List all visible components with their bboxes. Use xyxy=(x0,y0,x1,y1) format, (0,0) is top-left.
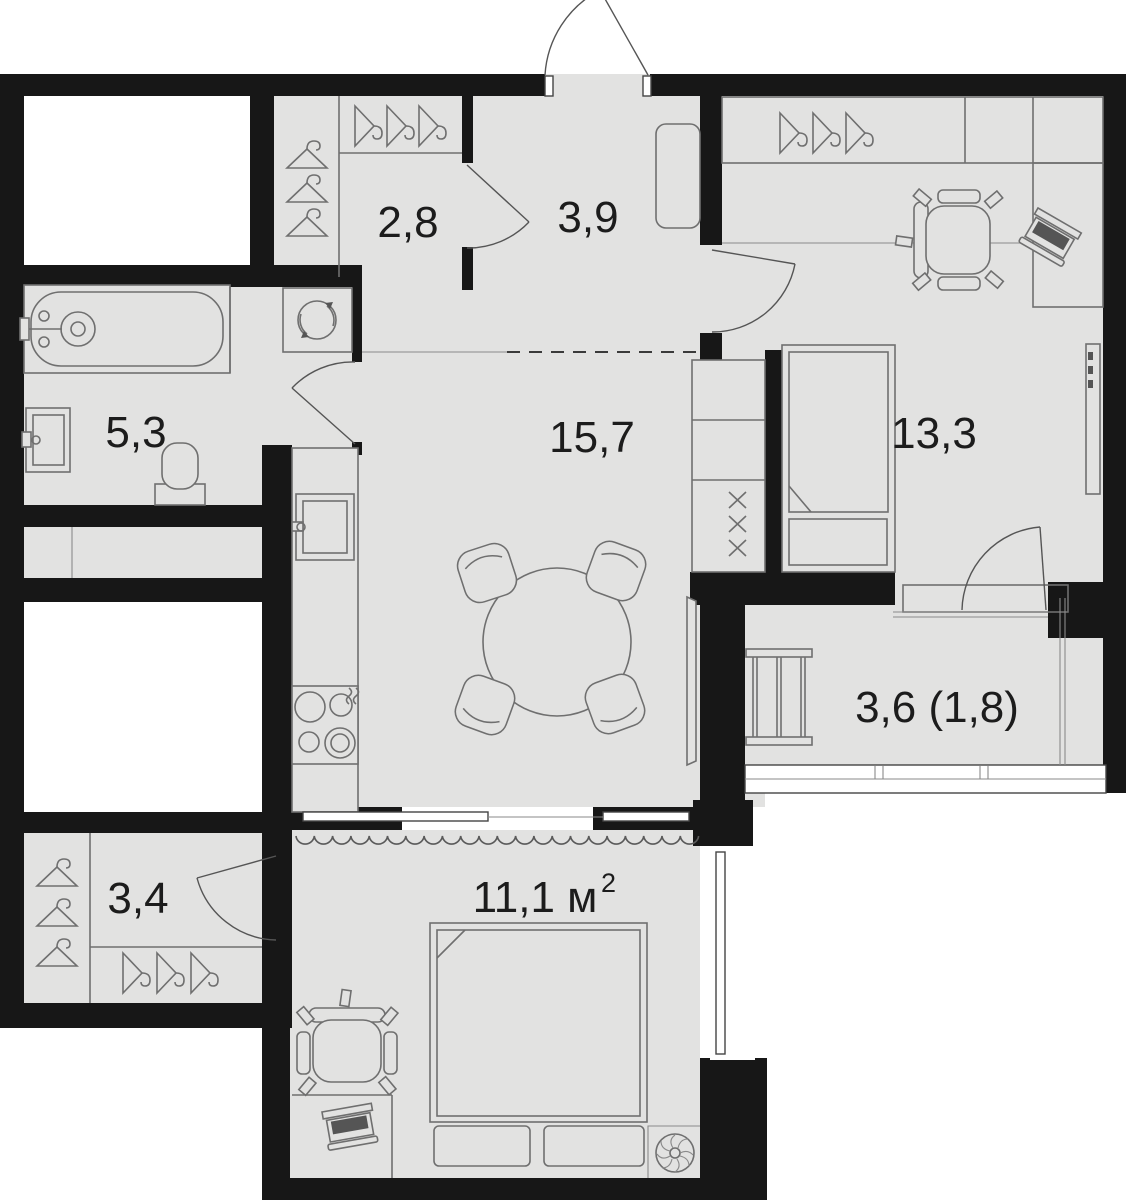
floor-plan: 2,8 3,9 5,3 15,7 13,3 3,6 (1,8) 3,4 11,1… xyxy=(0,0,1126,1200)
washing-machine xyxy=(283,288,352,352)
hob xyxy=(292,686,359,764)
neighbor-void-top xyxy=(24,96,250,265)
room-label-kitchen: 15,7 xyxy=(549,413,635,462)
room-label-bedroom-second: 11,1 м xyxy=(473,873,598,922)
room-label-loggia: 3,6 (1,8) xyxy=(855,683,1019,732)
room-label-hallway: 3,9 xyxy=(557,193,618,242)
window xyxy=(710,846,755,1060)
room-label-wardrobe: 3,4 xyxy=(107,874,168,923)
laptop xyxy=(322,1103,378,1150)
hall-cabinet xyxy=(656,124,700,228)
room-label-bathroom: 5,3 xyxy=(105,408,166,457)
neighbor-void-middle xyxy=(24,602,262,812)
bathtub xyxy=(20,285,230,373)
bathroom-sink xyxy=(22,408,70,472)
kitchen-sink xyxy=(292,494,354,560)
room-label-dressing: 2,8 xyxy=(377,198,438,247)
tall-cabinet-column xyxy=(692,360,765,572)
tv xyxy=(687,597,696,765)
room-label-bedroom-second-sup: 2 xyxy=(601,868,616,898)
sliding-door xyxy=(303,812,689,821)
floor-plan-page: 2,8 3,9 5,3 15,7 13,3 3,6 (1,8) 3,4 11,1… xyxy=(0,0,1126,1200)
room-label-bedroom-main: 13,3 xyxy=(891,409,977,458)
